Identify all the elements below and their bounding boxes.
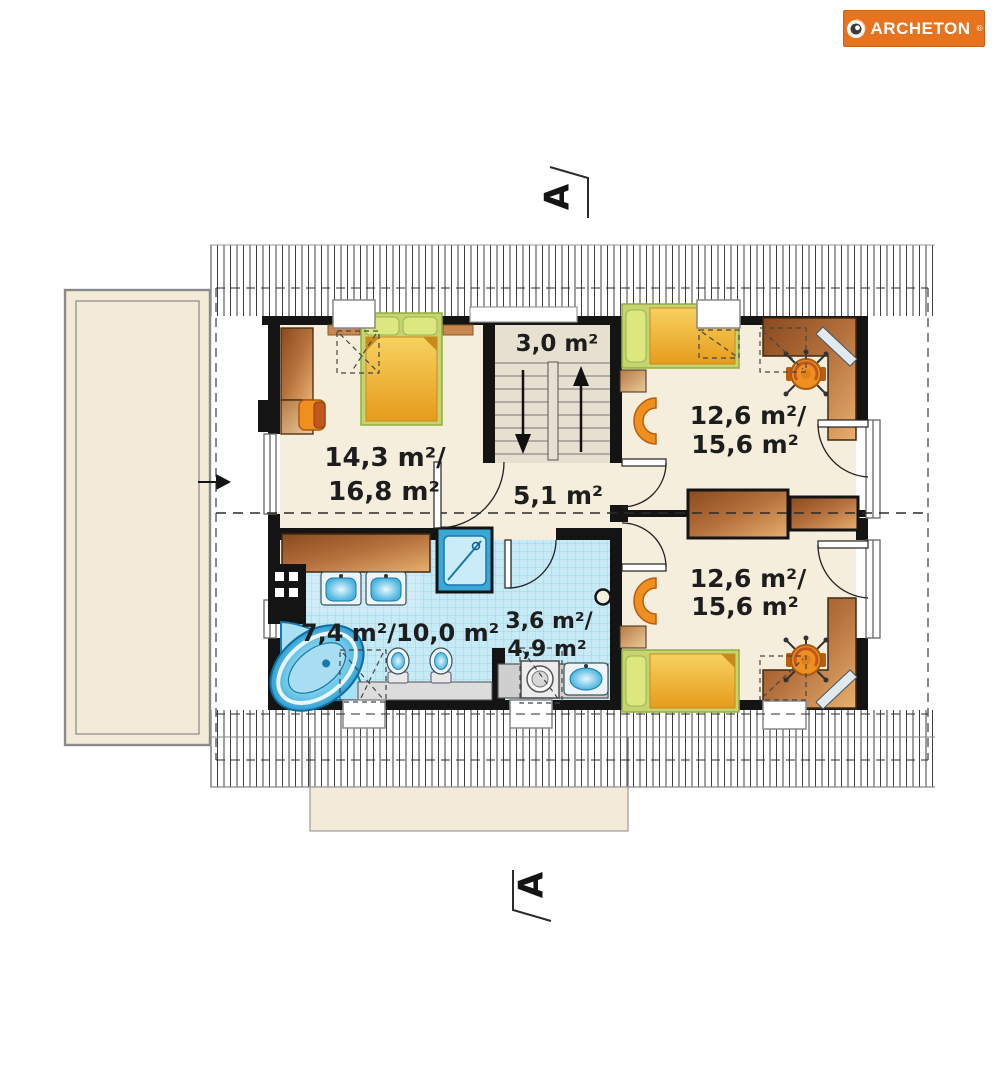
roof-hatch-top (210, 245, 935, 316)
floorplan-page: A A 3,0 m² 14,3 m²/ 16,8 m² 12,6 m²/ 15,… (0, 0, 995, 1077)
dormer-outline-bottom (310, 787, 628, 831)
section-letter: A (538, 183, 578, 210)
logo-registered-mark: ® (977, 25, 983, 33)
bedroom2-area-label: 12,6 m²/ (690, 401, 807, 430)
bedroom1-area-label: 14,3 m²/ (324, 443, 446, 473)
toilet-icon (387, 648, 409, 683)
bedroom1-area-label2: 16,8 m² (328, 477, 440, 507)
shower-icon (437, 528, 492, 592)
cabinet-icon (443, 325, 473, 335)
terrace (65, 290, 210, 745)
roof-hatch-bottom (210, 710, 935, 787)
hall-area-label: 5,1 m² (513, 481, 603, 510)
stair-dormer-window (470, 307, 577, 322)
bedroom2-area-label2: 15,6 m² (691, 430, 798, 459)
logo-brand-text: ARCHETON (871, 20, 971, 37)
washbasin-icon (366, 572, 406, 605)
wc-sink-icon (564, 663, 608, 695)
logo-target-icon (846, 19, 866, 39)
washbasin-icon (321, 572, 361, 605)
double-bed-icon (361, 313, 442, 425)
nightstand-icon (620, 370, 646, 392)
bathroom-area-label: 7,4 m²/10,0 m² (301, 619, 499, 647)
bedroom3-area-label: 12,6 m²/ (690, 564, 807, 593)
bedroom3-area-label2: 15,6 m² (691, 592, 798, 621)
section-marker-bottom: A (512, 870, 552, 921)
floor-plan-drawing: A A 3,0 m² 14,3 m²/ 16,8 m² 12,6 m²/ 15,… (0, 0, 995, 1077)
wc-area-label: 3,6 m²/ (505, 609, 593, 634)
chimney-flue-icon (268, 564, 306, 624)
archeton-logo: ARCHETON ® (843, 10, 985, 47)
wardrobe-icon (688, 490, 788, 538)
wc-area-label2: 4,9 m² (507, 637, 586, 662)
wardrobes (688, 490, 858, 538)
desk-icon (281, 328, 313, 400)
section-marker-top: A (538, 167, 589, 218)
bidet-icon (430, 648, 452, 683)
staircase-area-label: 3,0 m² (516, 331, 599, 357)
fixture-shelf (358, 682, 492, 700)
nightstand-icon (620, 626, 646, 648)
section-letter: A (512, 871, 552, 898)
vent-pipe-icon (596, 590, 611, 605)
single-bed-icon (622, 650, 739, 712)
washing-machine-icon (521, 661, 559, 698)
